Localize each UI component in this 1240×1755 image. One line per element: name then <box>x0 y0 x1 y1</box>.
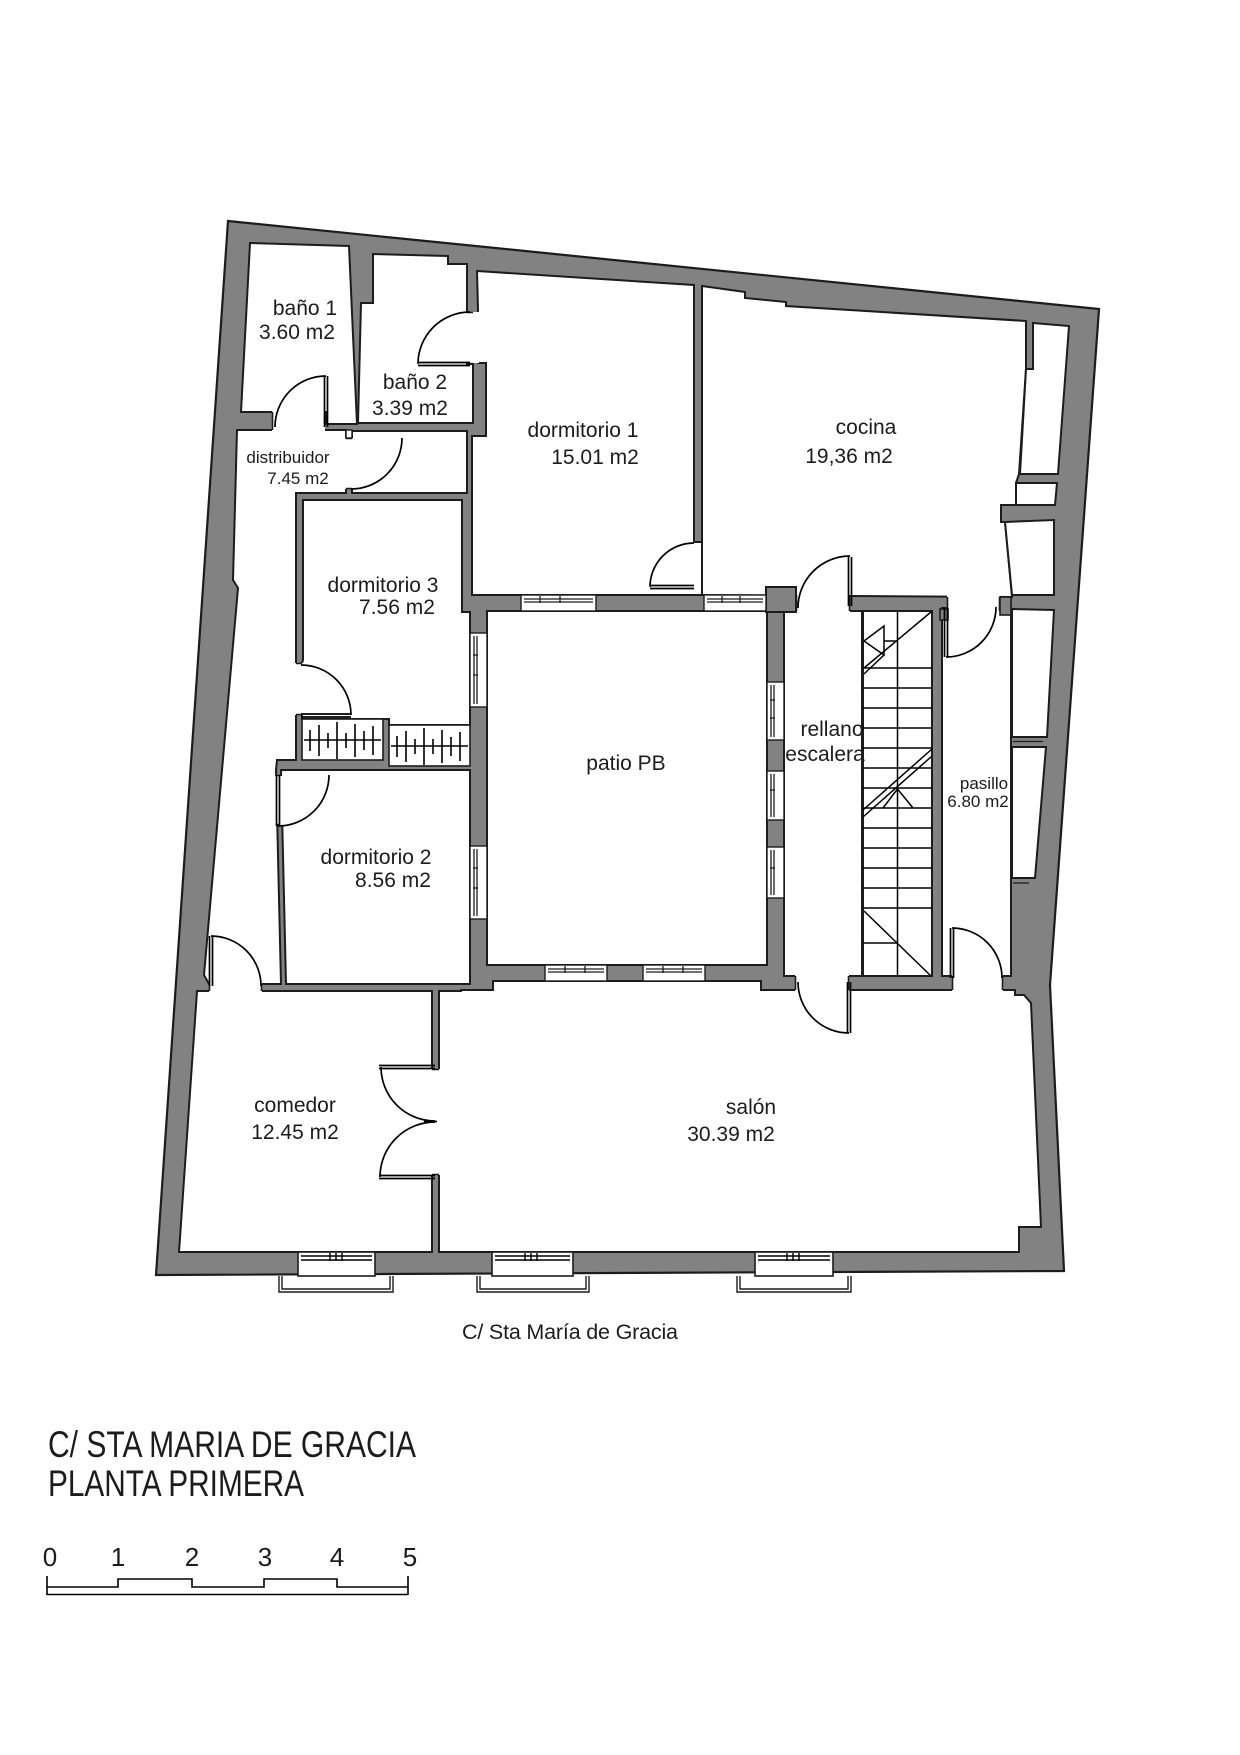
svg-text:5: 5 <box>403 1542 417 1572</box>
svg-text:baño 1: baño 1 <box>273 297 337 320</box>
svg-text:patio PB: patio PB <box>586 752 665 775</box>
svg-text:0: 0 <box>43 1542 57 1572</box>
svg-text:salón: salón <box>726 1096 776 1119</box>
svg-text:15.01 m2: 15.01 m2 <box>551 446 639 469</box>
svg-text:comedor: comedor <box>254 1094 336 1117</box>
svg-text:dormitorio 2: dormitorio 2 <box>321 846 432 869</box>
svg-text:dormitorio 3: dormitorio 3 <box>328 574 439 597</box>
svg-text:6.80 m2: 6.80 m2 <box>947 792 1008 811</box>
svg-text:cocina: cocina <box>836 416 897 439</box>
svg-text:C/ Sta María de Gracia: C/ Sta María de Gracia <box>462 1320 678 1344</box>
svg-text:30.39 m2: 30.39 m2 <box>687 1123 775 1146</box>
svg-text:distribuidor: distribuidor <box>246 448 329 467</box>
svg-text:8.56 m2: 8.56 m2 <box>355 869 431 892</box>
svg-text:1: 1 <box>111 1542 125 1572</box>
svg-text:escalera: escalera <box>785 743 865 766</box>
svg-text:7.56 m2: 7.56 m2 <box>359 596 435 619</box>
svg-text:4: 4 <box>330 1542 344 1572</box>
svg-text:7.45 m2: 7.45 m2 <box>267 469 328 488</box>
svg-text:2: 2 <box>185 1542 199 1572</box>
svg-text:12.45 m2: 12.45 m2 <box>251 1121 339 1144</box>
svg-text:pasillo: pasillo <box>960 774 1008 793</box>
svg-text:3.39 m2: 3.39 m2 <box>372 397 448 420</box>
svg-text:dormitorio 1: dormitorio 1 <box>528 419 639 442</box>
svg-text:3: 3 <box>258 1542 272 1572</box>
svg-text:rellano: rellano <box>800 718 863 741</box>
svg-text:3.60 m2: 3.60 m2 <box>259 321 335 344</box>
svg-text:baño 2: baño 2 <box>383 371 447 394</box>
svg-text:PLANTA PRIMERA: PLANTA PRIMERA <box>48 1463 304 1504</box>
svg-text:19,36 m2: 19,36 m2 <box>805 445 893 468</box>
svg-text:C/ STA MARIA DE GRACIA: C/ STA MARIA DE GRACIA <box>48 1424 416 1465</box>
